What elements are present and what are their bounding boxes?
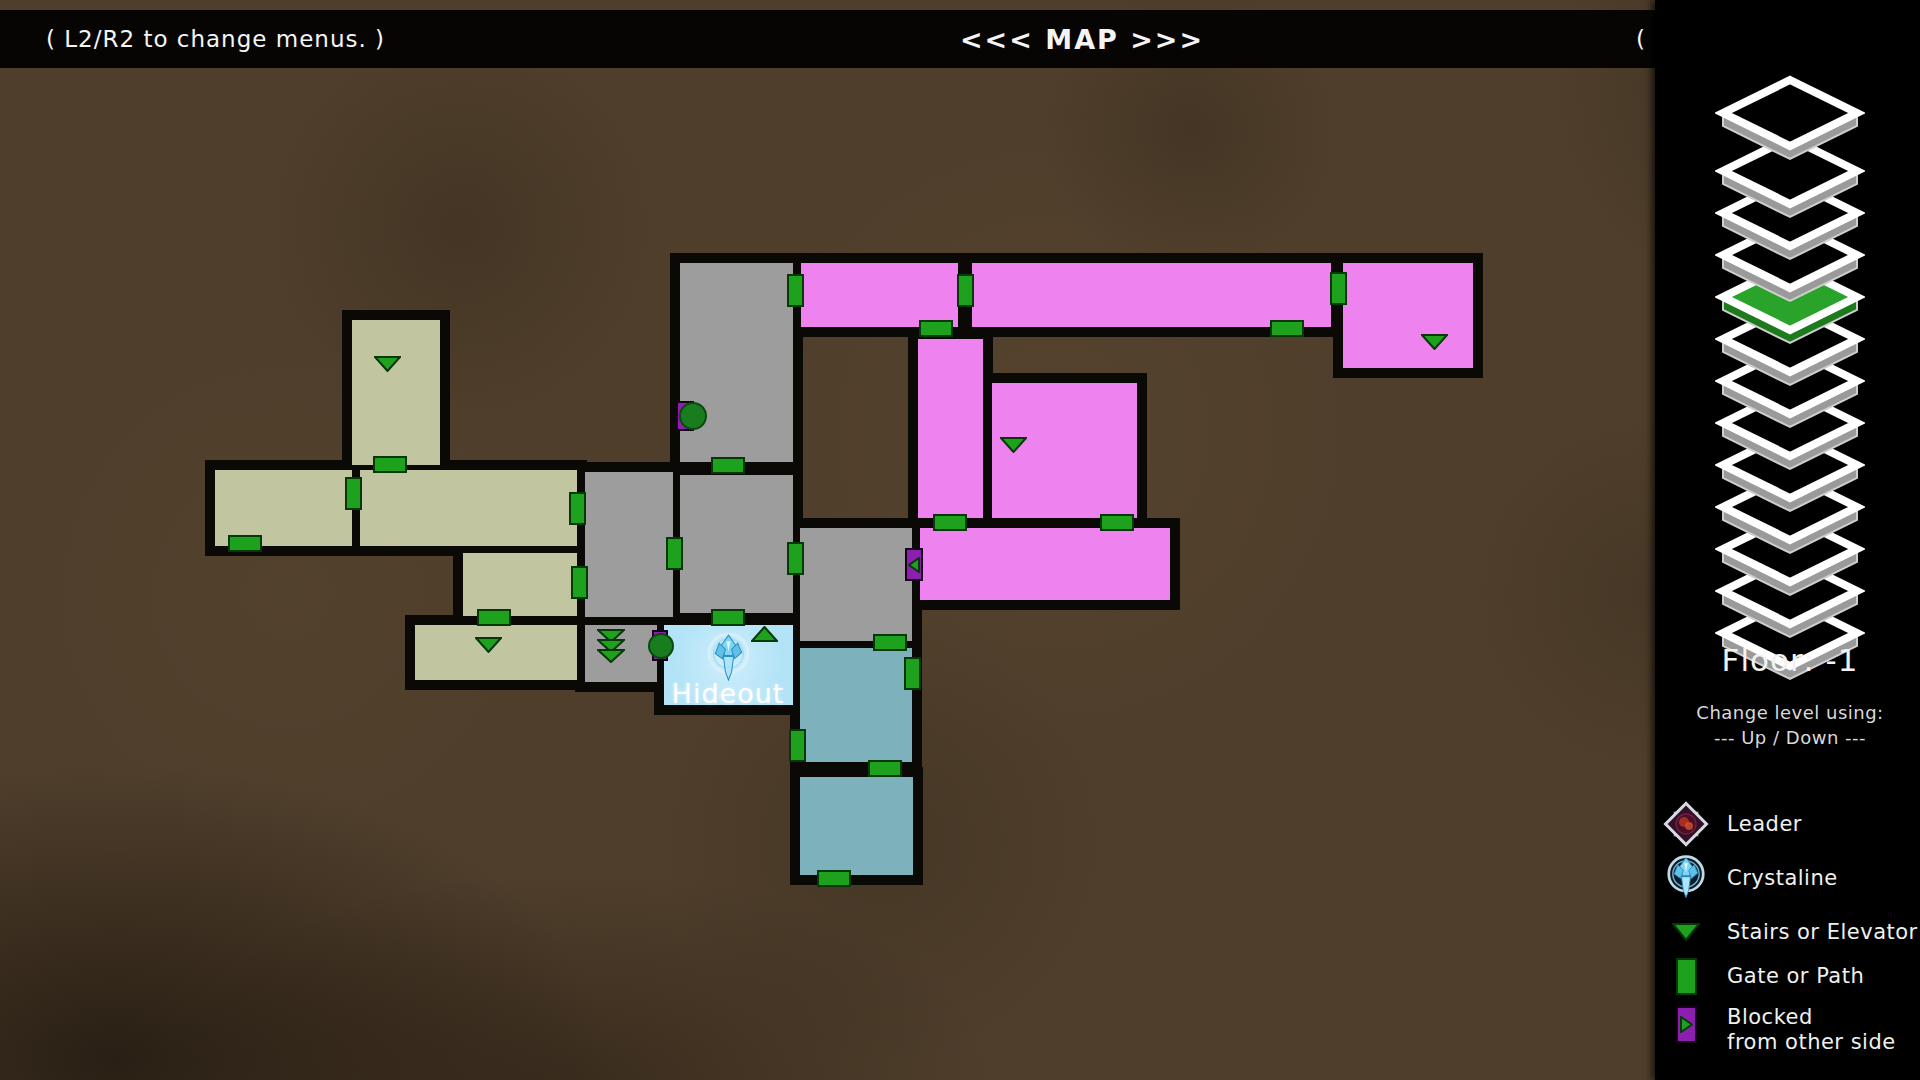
floor-label: Floor: -1 <box>1722 642 1859 678</box>
gate-or-path-marker <box>711 609 745 626</box>
gate-or-path-marker <box>919 320 953 337</box>
gate-or-path-marker <box>477 609 511 626</box>
floor-stack <box>1715 72 1865 696</box>
blocked-icon <box>1663 999 1709 1049</box>
gate-or-path-marker <box>228 535 262 552</box>
sidebar: Floor: -1 Change level using: --- Up / D… <box>1655 0 1920 1080</box>
gate-or-path-marker <box>1100 514 1134 531</box>
legend-label: Stairs or Elevator <box>1727 920 1918 944</box>
legend-label-line2: from other side <box>1727 1030 1896 1054</box>
legend-row-blocked: Blockedfrom other side <box>1655 999 1920 1061</box>
gate-or-path-marker <box>345 477 362 510</box>
gate-or-path-marker <box>868 760 902 777</box>
hideout-label: Hideout <box>672 678 785 709</box>
gate-or-path-marker <box>787 542 804 575</box>
legend-label: Crystaline <box>1727 866 1838 890</box>
room-magenta-wide-room <box>920 528 1170 600</box>
stairs-marker <box>597 629 625 663</box>
stairs-marker <box>1000 437 1027 457</box>
room-east-gray-room <box>800 528 912 641</box>
legend-label: Blocked <box>1727 1005 1813 1029</box>
crystaline-icon <box>1663 853 1709 903</box>
gate-or-path-marker <box>666 537 683 570</box>
room-olive-tower <box>352 320 440 465</box>
change-level-hint: Change level using: <box>1696 702 1883 723</box>
room-stair-column-lower <box>680 475 793 613</box>
legend-label: Gate or Path <box>1727 964 1864 988</box>
room-center-gray-room <box>585 472 673 617</box>
gate-or-path-marker <box>904 657 921 690</box>
gate-or-path-marker <box>569 492 586 525</box>
room-magenta-ne-room <box>1343 263 1473 368</box>
room-stair-column-upper <box>680 263 793 462</box>
gate-or-path-marker <box>873 634 907 651</box>
floor-stack-diagram <box>1715 72 1865 692</box>
menu-switch-hint: ( L2/R2 to change menus. ) <box>46 26 385 52</box>
legend-label: Leader <box>1727 812 1802 836</box>
gate-or-path-marker <box>787 274 804 307</box>
gate-or-path-marker <box>1270 320 1304 337</box>
room-magenta-corridor <box>972 263 1331 327</box>
legend-row-gate: Gate or Path <box>1655 951 1920 1001</box>
party-dot-marker <box>648 633 674 659</box>
gate-or-path-marker <box>571 566 588 599</box>
gate-or-path-marker <box>373 456 407 473</box>
gate-or-path-marker <box>1330 272 1347 305</box>
gate-or-path-marker <box>711 457 745 474</box>
party-dot-marker <box>679 402 707 430</box>
room-olive-mid-room <box>463 553 577 616</box>
blocked-icon-swatch <box>1676 1006 1697 1043</box>
up-down-hint: --- Up / Down --- <box>1714 727 1866 748</box>
legend-row-leader: Leader <box>1655 799 1920 849</box>
room-magenta-nw-room <box>801 263 958 327</box>
stairs-marker <box>751 626 778 646</box>
leader-icon <box>1663 799 1709 849</box>
stairs-icon <box>1663 907 1709 957</box>
room-teal-lower-room <box>800 777 913 875</box>
stairs-marker <box>475 637 502 657</box>
map-title: <<< MAP >>> <box>960 24 1204 55</box>
stairs-marker <box>1421 334 1448 354</box>
room-magenta-strip <box>918 339 983 518</box>
room-teal-upper-room <box>800 648 912 762</box>
gate-icon-swatch <box>1676 958 1697 995</box>
floor-layer <box>1723 80 1857 159</box>
gate-icon <box>1663 951 1709 1001</box>
legend-row-crystaline: Crystaline <box>1655 853 1920 903</box>
gate-or-path-marker <box>957 274 974 307</box>
gate-or-path-marker <box>789 729 806 762</box>
stairs-marker <box>374 356 401 376</box>
top-bar: ( L2/R2 to change menus. ) <<< MAP >>> (… <box>0 10 1920 68</box>
legend-row-stairs: Stairs or Elevator <box>1655 907 1920 957</box>
gate-or-path-marker <box>933 514 967 531</box>
gate-or-path-marker <box>817 870 851 887</box>
room-olive-main-hall <box>360 470 577 546</box>
blocked-marker <box>905 548 923 581</box>
